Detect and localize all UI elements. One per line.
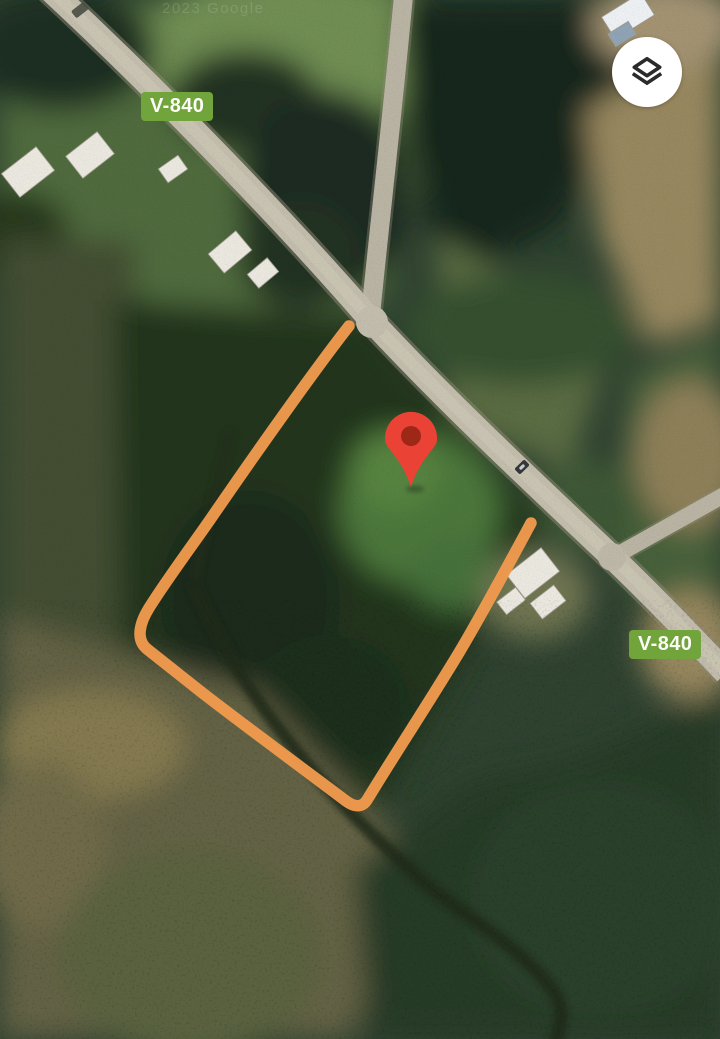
map-watermark: 2023 Google: [162, 0, 264, 17]
layers-button[interactable]: [612, 37, 682, 107]
road-label-v840-bottom: V-840: [629, 630, 701, 659]
satellite-map-view[interactable]: 2023 Google V-840 V-840: [0, 0, 720, 1039]
satellite-imagery: 2023 Google: [0, 0, 720, 1039]
terrain-texture: [0, 0, 720, 1039]
layers-icon: [629, 54, 665, 90]
pin-inner-dot: [401, 426, 421, 446]
road-label-v840-top: V-840: [141, 92, 213, 121]
pin-shadow: [406, 486, 424, 493]
